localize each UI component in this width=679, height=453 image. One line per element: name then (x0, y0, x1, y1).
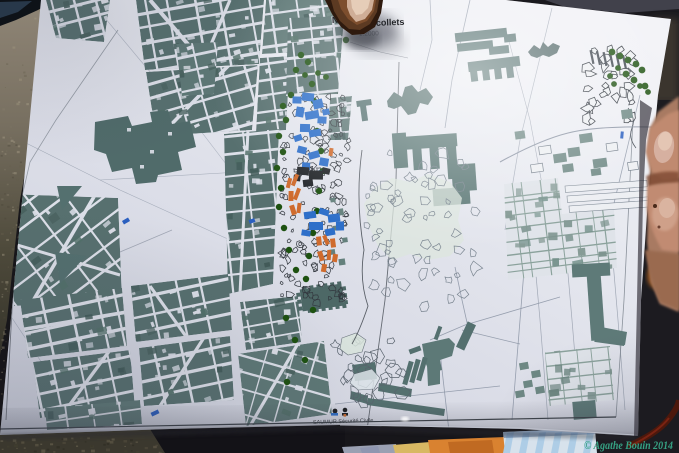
svg-text:© Agathe Bouin 2014: © Agathe Bouin 2014 (584, 440, 673, 452)
